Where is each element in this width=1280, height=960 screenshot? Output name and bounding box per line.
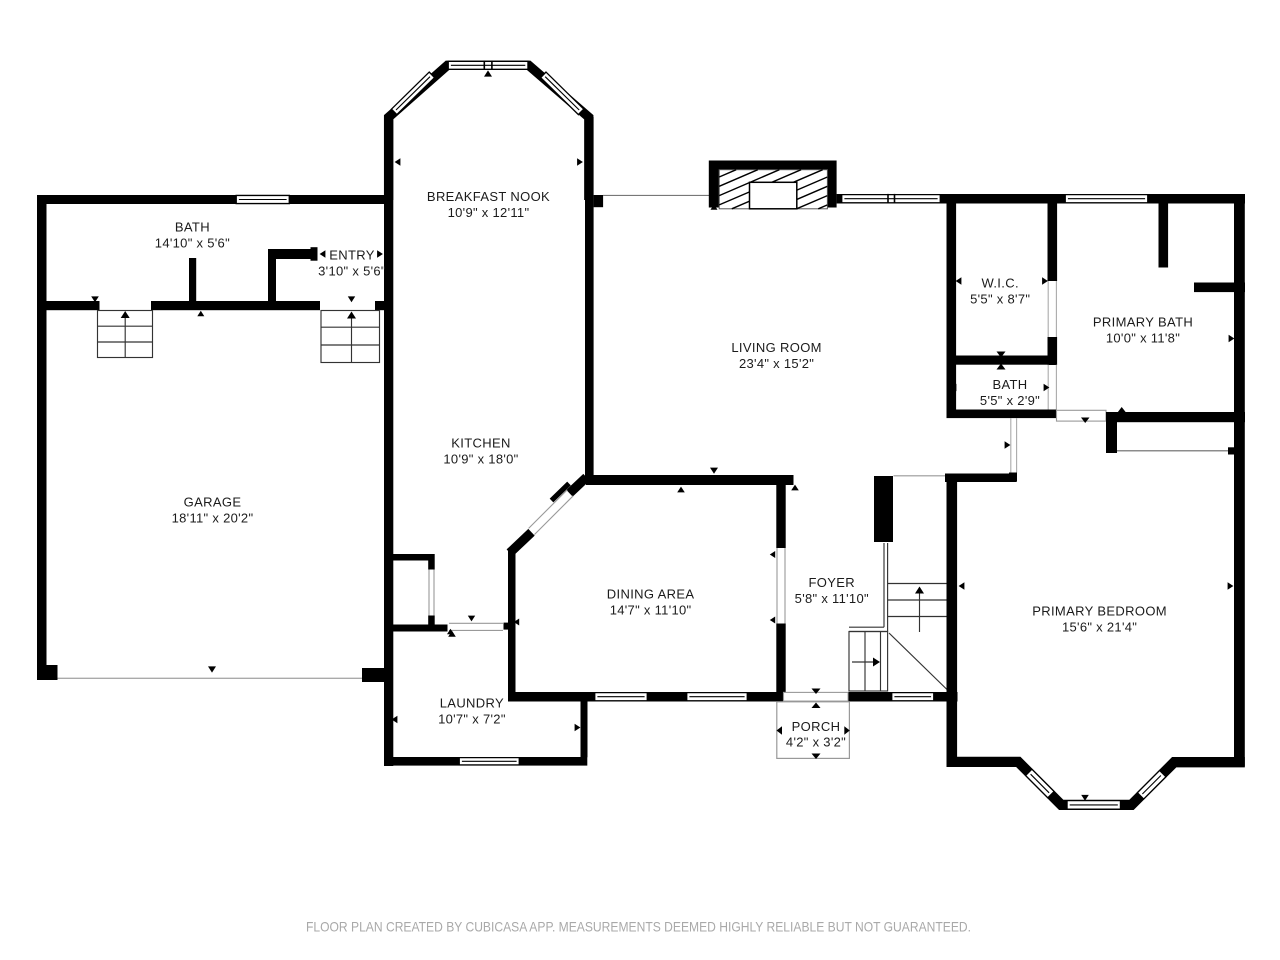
svg-text:15'6" x 21'4": 15'6" x 21'4" (1062, 619, 1137, 634)
svg-text:5'5" x 8'7": 5'5" x 8'7" (970, 292, 1030, 307)
svg-text:GARAGE: GARAGE (184, 495, 242, 510)
svg-text:5'8" x 11'10": 5'8" x 11'10" (795, 591, 869, 606)
svg-text:3'10" x 5'6": 3'10" x 5'6" (318, 264, 386, 279)
svg-text:DINING AREA: DINING AREA (607, 587, 695, 602)
svg-text:PRIMARY BATH: PRIMARY BATH (1093, 315, 1193, 330)
svg-text:LAUNDRY: LAUNDRY (440, 696, 504, 711)
svg-text:LIVING ROOM: LIVING ROOM (731, 340, 822, 355)
svg-text:14'7" x 11'10": 14'7" x 11'10" (610, 603, 692, 618)
svg-text:18'11" x 20'2": 18'11" x 20'2" (172, 511, 254, 526)
svg-text:KITCHEN: KITCHEN (451, 435, 511, 450)
svg-text:FLOOR PLAN CREATED BY CUBICASA: FLOOR PLAN CREATED BY CUBICASA APP. MEAS… (306, 919, 971, 935)
svg-text:10'9" x 18'0": 10'9" x 18'0" (443, 451, 518, 466)
svg-text:BATH: BATH (992, 377, 1027, 392)
svg-text:W.I.C.: W.I.C. (981, 276, 1019, 291)
svg-text:23'4" x 15'2": 23'4" x 15'2" (739, 356, 814, 371)
svg-text:PRIMARY BEDROOM: PRIMARY BEDROOM (1032, 603, 1167, 618)
svg-text:10'0" x 11'8": 10'0" x 11'8" (1106, 331, 1180, 346)
svg-text:10'9" x 12'11": 10'9" x 12'11" (448, 205, 530, 220)
svg-text:4'2" x 3'2": 4'2" x 3'2" (786, 734, 846, 749)
svg-text:BREAKFAST NOOK: BREAKFAST NOOK (427, 189, 550, 204)
svg-text:14'10" x 5'6": 14'10" x 5'6" (155, 235, 230, 250)
svg-text:PORCH: PORCH (792, 719, 841, 734)
svg-text:ENTRY: ENTRY (329, 248, 375, 263)
svg-text:BATH: BATH (175, 219, 210, 234)
svg-text:5'5" x 2'9": 5'5" x 2'9" (980, 393, 1040, 408)
svg-text:10'7" x 7'2": 10'7" x 7'2" (438, 712, 506, 727)
svg-text:FOYER: FOYER (809, 575, 856, 590)
